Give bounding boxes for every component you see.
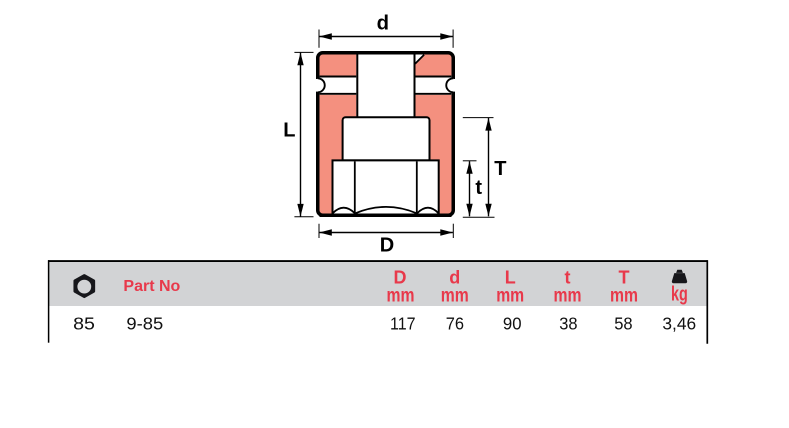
svg-text:mm: mm	[554, 285, 582, 306]
svg-text:58: 58	[614, 313, 632, 333]
svg-text:D: D	[380, 235, 394, 257]
svg-text:85: 85	[73, 313, 95, 333]
svg-text:3,46: 3,46	[662, 313, 696, 333]
svg-text:117: 117	[390, 313, 416, 333]
svg-text:76: 76	[446, 313, 464, 333]
svg-text:mm: mm	[610, 285, 638, 306]
svg-text:L: L	[283, 120, 295, 142]
svg-text:t: t	[475, 177, 482, 199]
svg-text:mm: mm	[496, 285, 524, 306]
svg-text:90: 90	[503, 313, 522, 333]
svg-text:mm: mm	[387, 285, 415, 306]
svg-text:T: T	[494, 158, 506, 180]
svg-text:d: d	[377, 13, 389, 35]
svg-text:9-85: 9-85	[126, 313, 163, 333]
svg-text:38: 38	[559, 313, 577, 333]
svg-text:Part No: Part No	[123, 278, 180, 295]
svg-text:mm: mm	[441, 285, 469, 306]
svg-text:kg: kg	[671, 283, 688, 305]
